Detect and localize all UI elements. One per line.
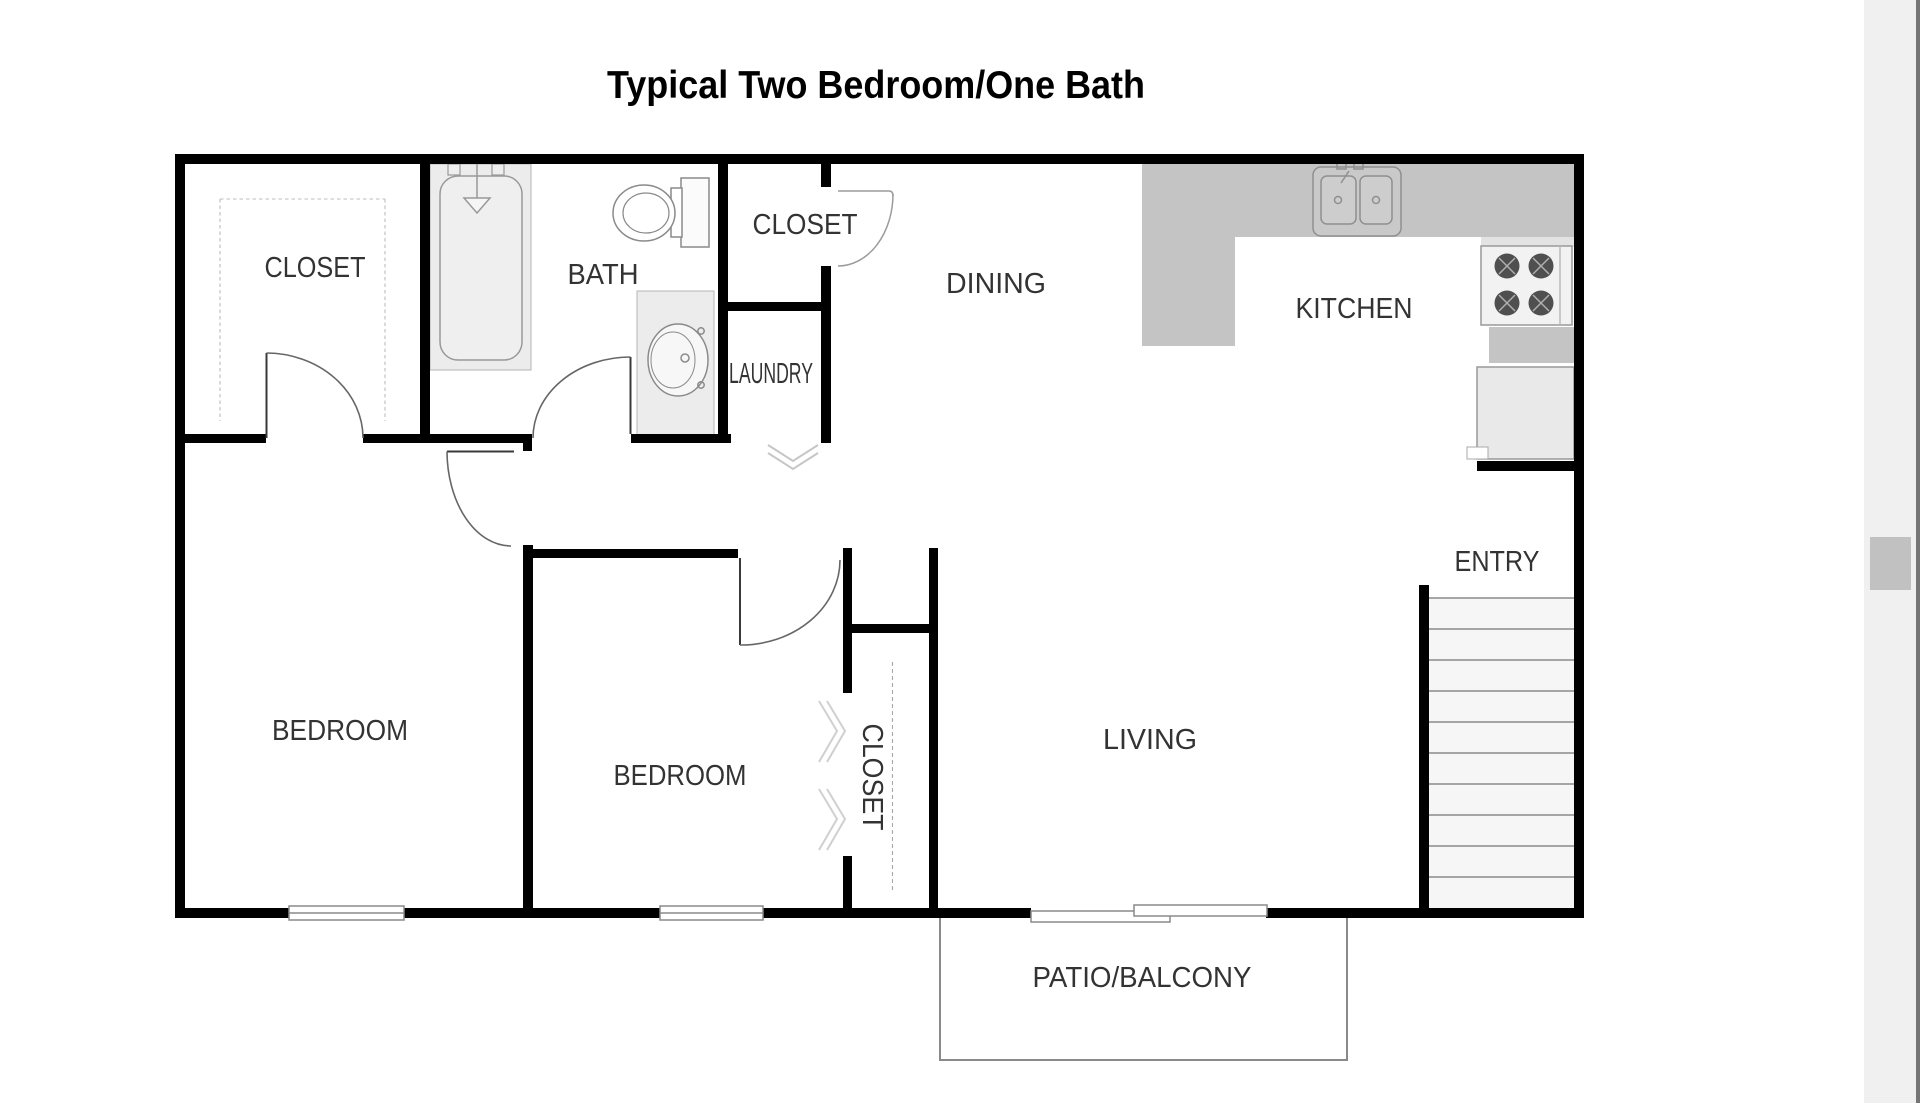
- svg-text:CLOSET: CLOSET: [265, 252, 366, 284]
- svg-text:ENTRY: ENTRY: [1455, 546, 1540, 578]
- svg-text:Typical Two Bedroom/One Bath: Typical Two Bedroom/One Bath: [607, 64, 1145, 107]
- svg-text:BATH: BATH: [568, 259, 639, 291]
- svg-text:DINING: DINING: [946, 268, 1046, 300]
- svg-text:BEDROOM: BEDROOM: [272, 715, 408, 747]
- svg-text:BEDROOM: BEDROOM: [614, 760, 747, 792]
- svg-text:CLOSET: CLOSET: [753, 209, 858, 241]
- svg-text:CLOSET: CLOSET: [856, 724, 888, 831]
- svg-text:LIVING: LIVING: [1103, 724, 1197, 756]
- svg-text:KITCHEN: KITCHEN: [1296, 293, 1413, 325]
- svg-text:LAUNDRY: LAUNDRY: [729, 358, 813, 390]
- svg-text:PATIO/BALCONY: PATIO/BALCONY: [1033, 962, 1252, 994]
